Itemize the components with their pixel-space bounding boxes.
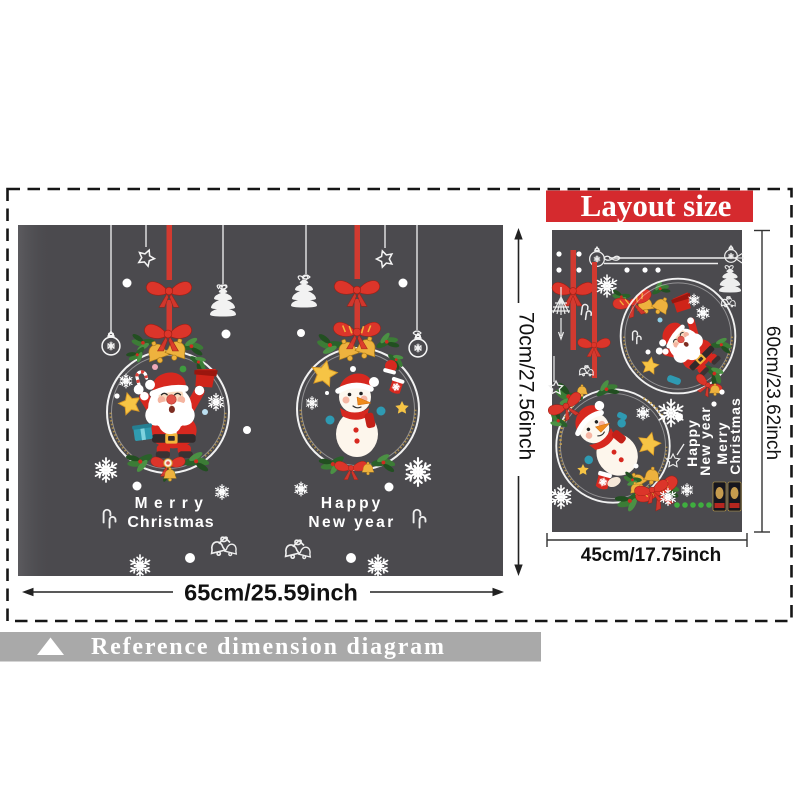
svg-text:Happy: Happy	[321, 495, 383, 512]
svg-text:60cm/23.62inch: 60cm/23.62inch	[762, 326, 783, 460]
svg-text:New year: New year	[308, 514, 395, 531]
svg-text:Merry: Merry	[135, 495, 210, 512]
svg-text:70cm/27.56inch: 70cm/27.56inch	[515, 312, 538, 460]
svg-text:65cm/25.59inch: 65cm/25.59inch	[184, 580, 358, 606]
svg-text:Christmas: Christmas	[127, 514, 214, 531]
svg-text:New year: New year	[697, 406, 713, 475]
svg-text:45cm/17.75inch: 45cm/17.75inch	[581, 545, 721, 566]
svg-text:Layout size: Layout size	[581, 188, 732, 223]
svg-text:Christmas: Christmas	[727, 397, 743, 474]
svg-text:Reference dimension diagram: Reference dimension diagram	[91, 634, 446, 660]
